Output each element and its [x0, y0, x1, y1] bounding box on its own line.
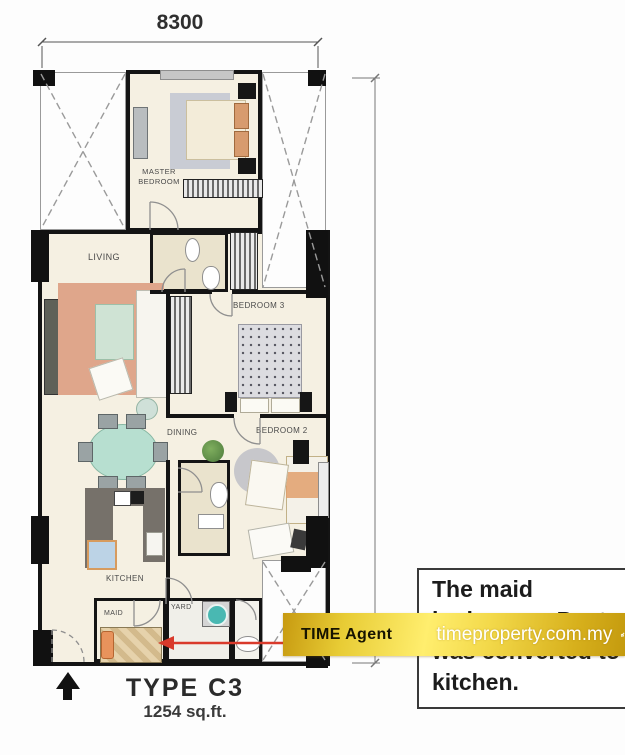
bath3-toilet — [236, 636, 260, 652]
master-pillow — [234, 131, 249, 157]
hall-closet — [230, 232, 258, 290]
bedroom3-pillow — [271, 398, 300, 413]
planter-ledge — [160, 70, 234, 80]
floor-plan-page: 8300 — [0, 0, 625, 755]
label-kitchen: KITCHEN — [106, 574, 144, 583]
unit-type-title: TYPE C3 — [120, 674, 250, 703]
tv-console — [44, 299, 59, 395]
master-wardrobe — [183, 179, 263, 198]
bath2-sink — [198, 514, 224, 529]
kitchen-appliance — [146, 532, 163, 556]
column — [33, 70, 55, 86]
coffee-table — [95, 304, 134, 360]
label-living: LIVING — [88, 252, 120, 262]
bedroom2-duvet — [245, 460, 289, 511]
sofa — [136, 290, 167, 398]
top-dimension-line — [38, 38, 322, 68]
bedroom2-window — [318, 462, 329, 518]
column — [281, 556, 311, 572]
label-master-bedroom: MASTER BEDROOM — [131, 167, 187, 187]
wall — [127, 228, 155, 233]
label-dining: DINING — [167, 428, 197, 437]
home-tag-check-icon — [620, 615, 625, 655]
bedroom3-wardrobe — [170, 296, 192, 394]
bath1-toilet — [202, 266, 220, 290]
north-arrow-icon — [56, 672, 80, 700]
column — [31, 230, 49, 282]
nightstand — [225, 392, 237, 412]
wall — [166, 292, 170, 418]
bedroom2-cabinet — [293, 440, 309, 464]
dining-chair — [78, 442, 93, 462]
column — [308, 70, 326, 86]
kitchen-sink — [114, 491, 131, 506]
nightstand — [300, 392, 312, 412]
label-bedroom3: BEDROOM 3 — [233, 301, 285, 310]
bath1-sink — [185, 238, 200, 262]
watermark-banner: TIME Agent timeproperty.com.my — [283, 613, 625, 656]
dining-chair — [98, 414, 118, 429]
website-text: timeproperty.com.my — [436, 624, 612, 646]
nightstand — [238, 158, 256, 174]
right-dimension-line — [352, 74, 380, 667]
room-bathroom-2 — [178, 460, 230, 556]
note-line-4: kitchen. — [432, 667, 625, 698]
master-pillow — [234, 103, 249, 129]
agent-label: TIME Agent — [301, 626, 392, 644]
dining-chair — [153, 442, 168, 462]
bath2-toilet — [210, 482, 228, 508]
column — [306, 230, 328, 298]
maid-pillow — [101, 631, 114, 659]
column — [31, 516, 49, 564]
wall — [166, 460, 170, 600]
wall — [150, 290, 212, 294]
fridge — [87, 540, 117, 570]
note-line-1: The maid — [432, 574, 625, 605]
wall — [166, 414, 234, 418]
wall — [260, 414, 330, 418]
column — [33, 630, 53, 666]
dining-chair — [126, 414, 146, 429]
label-bedroom2: BEDROOM 2 — [256, 426, 308, 435]
master-dresser — [133, 107, 148, 159]
washer-drum — [206, 604, 228, 626]
bedroom3-pillow — [240, 398, 269, 413]
top-dimension-label: 8300 — [140, 11, 220, 35]
unit-area-text: 1254 sq.ft. — [120, 702, 250, 722]
kitchen-stove — [131, 491, 144, 504]
dining-table — [88, 424, 158, 480]
balcony-top-left — [40, 72, 126, 230]
label-maid: MAID — [104, 610, 123, 617]
room-bathroom-3 — [232, 598, 262, 662]
label-yard: YARD — [171, 604, 192, 611]
nightstand — [238, 83, 256, 99]
bedroom3-bed — [238, 324, 302, 398]
plant — [202, 440, 224, 462]
